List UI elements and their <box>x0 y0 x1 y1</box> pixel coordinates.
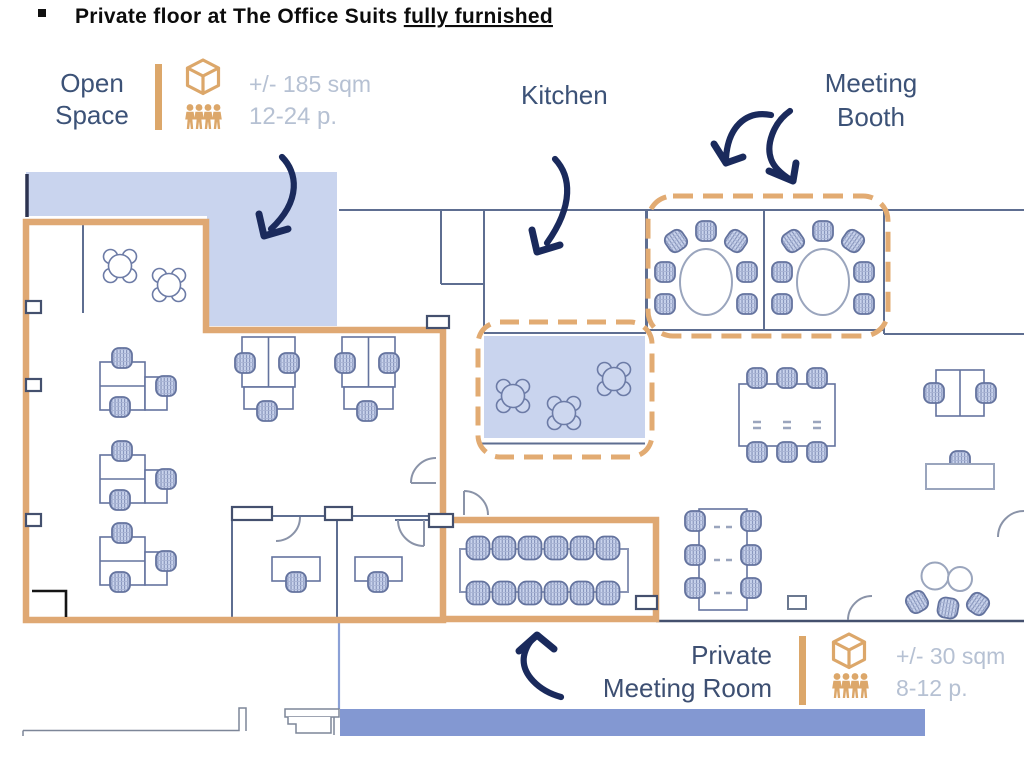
svg-text:Booth: Booth <box>837 102 905 132</box>
svg-text:Space: Space <box>55 100 129 130</box>
svg-text:Private: Private <box>691 640 772 670</box>
svg-text:Meeting: Meeting <box>825 68 918 98</box>
svg-text:Kitchen: Kitchen <box>521 80 608 110</box>
svg-text:Open: Open <box>60 68 124 98</box>
svg-text:8-12 p.: 8-12 p. <box>896 675 968 701</box>
svg-text:+/- 30 sqm: +/- 30 sqm <box>896 643 1005 669</box>
svg-text:Meeting Room: Meeting Room <box>603 673 772 703</box>
svg-text:+/- 185 sqm: +/- 185 sqm <box>249 71 371 97</box>
svg-text:12-24 p.: 12-24 p. <box>249 103 337 130</box>
svg-text:Private floor at The Office Su: Private floor at The Office Suits fully … <box>75 5 553 28</box>
